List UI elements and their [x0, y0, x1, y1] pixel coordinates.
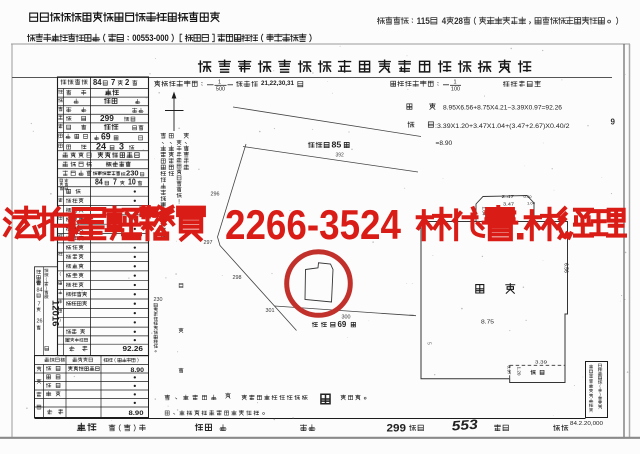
svg-text:84: 84 [95, 178, 103, 187]
svg-text:84: 84 [37, 288, 43, 294]
svg-text:392: 392 [336, 153, 345, 159]
svg-text:2.47: 2.47 [502, 194, 515, 200]
svg-text:297: 297 [204, 240, 213, 246]
svg-text:8.90: 8.90 [129, 410, 144, 417]
svg-text:7: 7 [111, 77, 116, 87]
svg-text:1.04: 1.04 [527, 202, 535, 206]
svg-text:24: 24 [96, 142, 107, 153]
svg-text:2266-3524: 2266-3524 [225, 201, 401, 248]
svg-text:115: 115 [417, 16, 430, 26]
svg-text:0.97: 0.97 [507, 366, 512, 375]
svg-text:85: 85 [332, 140, 342, 150]
svg-text:=8.90: =8.90 [436, 140, 453, 147]
svg-text:21,22,30,31: 21,22,30,31 [261, 80, 294, 87]
svg-text:0.40: 0.40 [524, 195, 532, 199]
svg-text:9: 9 [611, 118, 616, 127]
svg-text:230: 230 [154, 297, 163, 303]
svg-text:299: 299 [100, 114, 114, 123]
svg-text:8.90: 8.90 [131, 367, 145, 374]
svg-text:2: 2 [125, 77, 130, 87]
svg-text:4: 4 [442, 16, 446, 26]
svg-text::3.39X1.20+3.47X1.04+(3.47+2.6: :3.39X1.20+3.47X1.04+(3.47+2.67)X0.40/2 [435, 123, 570, 130]
svg-text:69: 69 [338, 319, 347, 329]
svg-text:296: 296 [211, 192, 220, 198]
svg-text:84: 84 [93, 77, 102, 87]
svg-text:3.39: 3.39 [535, 359, 547, 365]
svg-text:7: 7 [38, 302, 41, 308]
svg-text:301: 301 [266, 308, 275, 314]
svg-text:553: 553 [451, 417, 479, 434]
svg-text:28: 28 [454, 16, 463, 26]
svg-text:92.26: 92.26 [123, 346, 144, 353]
svg-text:00553-000: 00553-000 [132, 33, 168, 44]
svg-text:84.2.20,000: 84.2.20,000 [570, 421, 603, 427]
svg-text:230: 230 [126, 168, 139, 177]
svg-text:12016: 12016 [50, 300, 61, 326]
svg-text:69: 69 [101, 132, 111, 142]
svg-text:298: 298 [233, 275, 242, 281]
svg-text:100: 100 [451, 87, 460, 93]
svg-text:10: 10 [128, 178, 136, 187]
svg-text:26: 26 [37, 319, 43, 325]
svg-text:8.75: 8.75 [481, 319, 494, 325]
svg-text:5: 5 [426, 342, 432, 345]
svg-text:1: 1 [453, 80, 456, 86]
svg-text:6.56: 6.56 [563, 263, 569, 273]
svg-text:7: 7 [113, 178, 117, 187]
svg-text:3: 3 [119, 142, 124, 153]
svg-text:3.47: 3.47 [503, 201, 514, 207]
svg-text:1: 1 [218, 80, 221, 86]
svg-text:500: 500 [216, 87, 225, 93]
svg-text:299: 299 [387, 423, 407, 435]
svg-text:8.95X6.56+8.75X4.21−3.39X0.97=: 8.95X6.56+8.75X4.21−3.39X0.97=92.26 [443, 105, 563, 112]
svg-text:1.20: 1.20 [517, 367, 522, 376]
